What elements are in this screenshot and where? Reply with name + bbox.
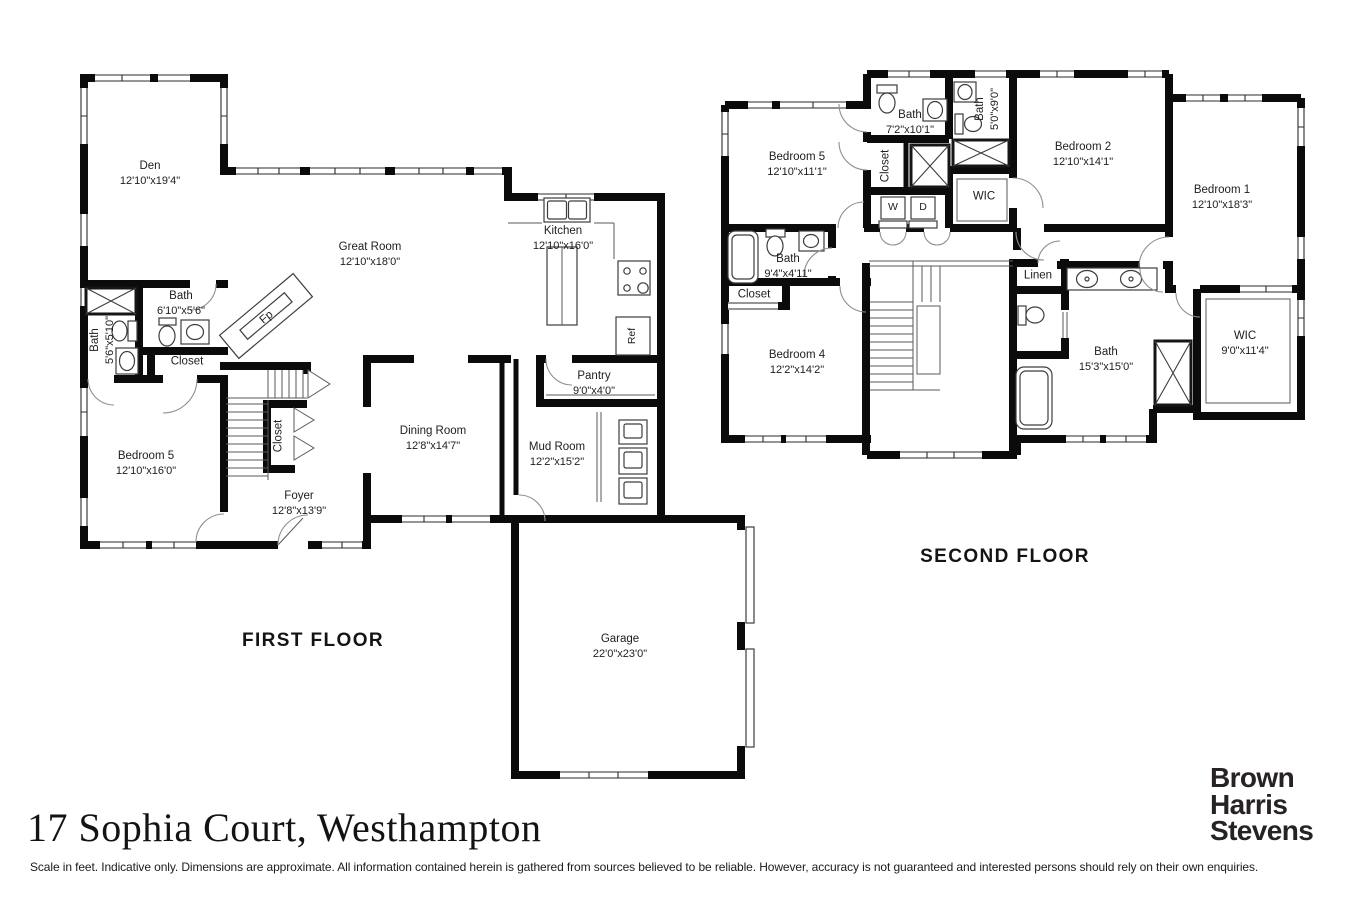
- double-sink-icon: [1067, 268, 1157, 290]
- second-floor-stairs: [869, 261, 1013, 390]
- room-label-mud-room: Mud Room12'2"x15'2": [529, 440, 585, 470]
- room-label-closet-2f: Closet: [878, 150, 893, 183]
- brand-line-3: Stevens: [1210, 818, 1313, 845]
- bathtub-icon: [1016, 367, 1052, 429]
- room-label-wic-top: WIC: [973, 189, 995, 204]
- shower-icon: [953, 140, 1009, 166]
- sink-icon: [181, 320, 209, 344]
- room-label-linen: Linen: [1024, 268, 1052, 283]
- room-label-garage: Garage22'0"x23'0": [593, 632, 647, 662]
- room-label-closet-bed4: Closet: [738, 287, 771, 302]
- sink-icon: [799, 231, 824, 251]
- fridge-label: Ref: [626, 328, 640, 344]
- room-label-bedroom-2: Bedroom 212'10"x14'1": [1053, 140, 1113, 170]
- room-label-pantry: Pantry9'0"x4'0": [573, 369, 615, 399]
- page-title: 17 Sophia Court, Westhampton: [27, 804, 541, 851]
- stove-icon: [618, 261, 650, 295]
- garage-door-panels: [746, 527, 754, 747]
- room-label-bath-72: Bath7'2"x10'1": [886, 108, 934, 138]
- room-label-bath: Bath6'10"x5'6": [157, 289, 205, 319]
- room-label-bath-master: Bath15'3"x15'0": [1079, 345, 1133, 375]
- bathtub-icon: [728, 231, 758, 283]
- floorplan-sheet: Den12'10"x19'4" Great Room12'10"x18'0" K…: [0, 0, 1350, 900]
- toilet-icon: [1018, 306, 1044, 325]
- toilet-icon: [159, 318, 176, 346]
- disclaimer-text: Scale in feet. Indicative only. Dimensio…: [30, 860, 1340, 874]
- room-label-closet-stairs: Closet: [271, 420, 286, 453]
- room-label-kitchen: Kitchen12'10"x16'0": [533, 224, 593, 254]
- dryer-label: D: [919, 201, 927, 215]
- floor-label-first: FIRST FLOOR: [242, 630, 384, 652]
- brand-line-2: Harris: [1210, 792, 1313, 819]
- brand-line-1: Brown: [1210, 765, 1313, 792]
- mudroom-appliances: [619, 420, 647, 504]
- shower-icon: [1155, 341, 1191, 405]
- room-label-bath-94: Bath9'4"x4'11": [764, 252, 811, 282]
- washer-label: W: [888, 201, 898, 215]
- room-label-dining-room: Dining Room12'8"x14'7": [400, 424, 466, 454]
- room-label-bedroom-5-2f: Bedroom 512'10"x11'1": [767, 150, 827, 180]
- floor-label-second: SECOND FLOOR: [920, 546, 1090, 568]
- room-label-den: Den12'10"x19'4": [120, 159, 180, 189]
- room-label-wic-master: WIC9'0"x11'4": [1221, 329, 1268, 359]
- room-label-bath-small: Bath5'6"x5'10": [88, 316, 118, 364]
- room-label-bedroom-1: Bedroom 112'10"x18'3": [1192, 183, 1252, 213]
- brand-logo: Brown Harris Stevens: [1210, 765, 1313, 845]
- shower-icon: [911, 145, 949, 187]
- sink-icon: [116, 348, 138, 374]
- floor-plan-canvas: [0, 0, 1350, 900]
- room-label-bath-50: Bath5'0"x9'0": [973, 88, 1003, 130]
- room-label-great-room: Great Room12'10"x18'0": [339, 240, 402, 270]
- shower-icon: [86, 288, 136, 314]
- bifold-door-icons: [294, 370, 330, 460]
- room-label-bedroom-4: Bedroom 412'2"x14'2": [769, 348, 825, 378]
- room-label-closet: Closet: [171, 354, 204, 369]
- room-label-bedroom-5: Bedroom 512'10"x16'0": [116, 449, 176, 479]
- kitchen-sink-icon: [544, 198, 590, 222]
- room-label-foyer: Foyer12'8"x13'9": [272, 489, 326, 519]
- kitchen-island: [547, 247, 577, 325]
